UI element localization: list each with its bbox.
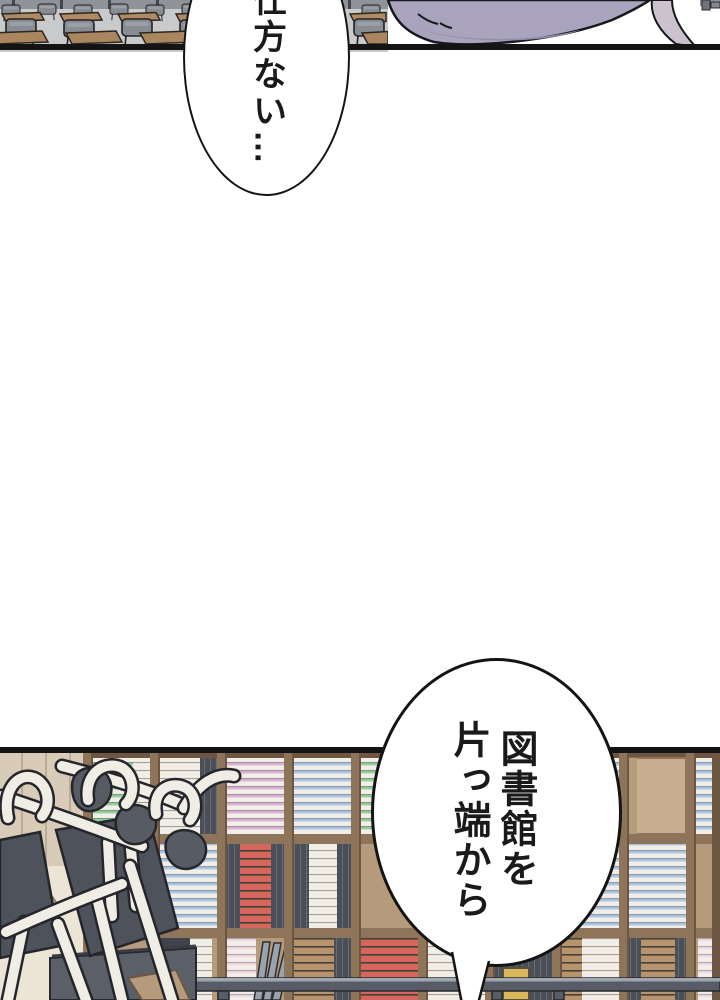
- speech-bubble-top: 仕方ない…: [183, 0, 350, 196]
- speech-bubble-tail: [440, 946, 504, 1000]
- empty-shelf-panel: [629, 758, 686, 834]
- chair-cushion: [166, 830, 207, 869]
- speech-line-1: 図書館を: [496, 729, 534, 920]
- speech-bubble-bottom: 図書館を 片っ端から: [371, 658, 622, 967]
- speech-text-bottom: 図書館を 片っ端から: [448, 720, 534, 920]
- classroom-corner-sliver: [700, 0, 720, 10]
- top-panel-classroom-art: [0, 0, 720, 52]
- manga-page: 仕方ない…: [0, 0, 720, 1000]
- panel-border: [0, 44, 720, 50]
- shelf-right-frame: [712, 753, 720, 1000]
- speech-text-top: 仕方ない…: [250, 0, 284, 167]
- speech-line-2: 片っ端から: [449, 720, 487, 920]
